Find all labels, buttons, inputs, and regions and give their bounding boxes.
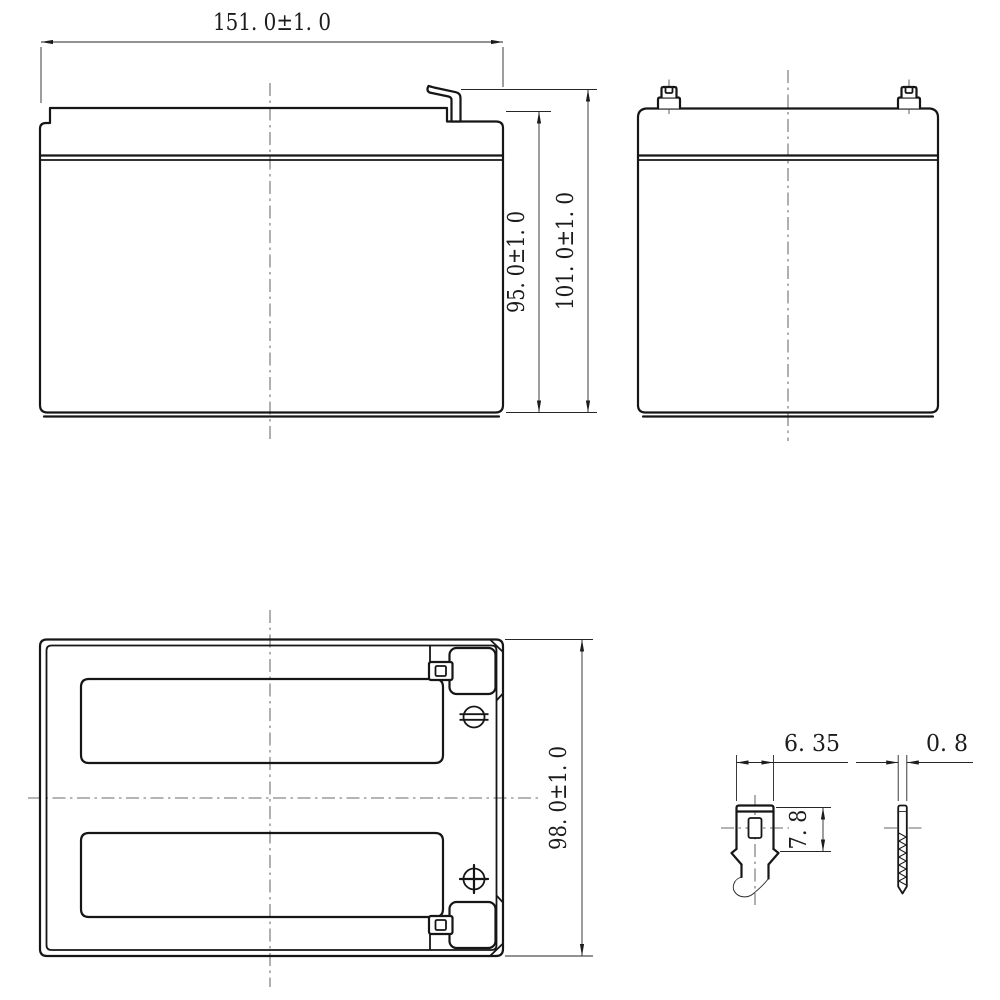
tab-break-line	[733, 877, 768, 897]
terminal-base	[658, 98, 680, 109]
dim-overall-height-text: 101. 0±1. 0	[553, 192, 579, 310]
dim-arrow	[821, 808, 825, 820]
dim-arrow	[537, 401, 541, 413]
tab-hole	[749, 818, 762, 838]
terminal-detail-side: 0. 8	[856, 731, 973, 894]
dim-arrow	[907, 760, 919, 764]
dim-depth-text: 98. 0±1. 0	[546, 746, 572, 850]
dim-arrow	[41, 40, 53, 44]
terminal-detail-front: 6. 35 7. 8	[721, 731, 848, 905]
dim-tab-shoulder-height: 7. 8	[776, 808, 831, 852]
terminal-base	[898, 98, 920, 109]
battery-technical-drawing: 151. 0±1. 0 95. 0±1. 0 101. 0±1. 0	[0, 0, 1000, 1000]
dim-tab-width: 6. 35	[737, 731, 849, 801]
tab-rolled-top-edge	[737, 806, 774, 812]
dim-arrow	[580, 640, 584, 652]
faston-tab-hole	[436, 920, 447, 930]
dim-arrow	[886, 760, 898, 764]
terminal-pad	[450, 902, 496, 948]
dim-overall-width-text: 151. 0±1. 0	[213, 10, 331, 36]
top-view-terminal-negative	[429, 648, 496, 694]
top-view-terminal-positive	[429, 902, 496, 948]
dim-tab-width-text: 6. 35	[784, 731, 840, 757]
front-view-case-outline	[40, 108, 503, 413]
dim-arrow	[821, 840, 825, 852]
dim-arrow	[737, 760, 749, 764]
dim-case-height-text: 95. 0±1. 0	[504, 211, 530, 313]
plus-cross	[460, 865, 488, 893]
front-view	[40, 83, 503, 441]
dim-arrow	[762, 760, 774, 764]
dim-heights: 95. 0±1. 0 101. 0±1. 0	[461, 90, 597, 413]
front-view-terminal-tab	[427, 86, 460, 122]
dim-arrow	[580, 944, 584, 956]
vent-circle-minus	[464, 707, 485, 728]
top-view: 98. 0±1. 0	[28, 610, 593, 987]
dim-extension-line	[898, 755, 907, 801]
dim-tab-thickness-text: 0. 8	[926, 731, 968, 757]
terminal-pad	[450, 648, 496, 694]
top-view-label-recess-lower	[81, 833, 443, 917]
dim-arrow	[537, 112, 541, 124]
dim-arrow	[586, 90, 590, 102]
positive-vent-symbol	[460, 865, 488, 893]
dim-tab-height-text: 7. 8	[786, 810, 812, 850]
dim-tab-thickness: 0. 8	[856, 731, 973, 801]
dim-arrow	[586, 401, 590, 413]
side-view	[638, 70, 938, 441]
faston-tab-hole	[436, 666, 447, 676]
top-view-label-recess-upper	[81, 679, 443, 763]
dim-arrow	[491, 40, 503, 44]
drawing-sheet: 151. 0±1. 0 95. 0±1. 0 101. 0±1. 0	[0, 0, 1000, 1000]
negative-vent-symbol	[460, 707, 489, 728]
